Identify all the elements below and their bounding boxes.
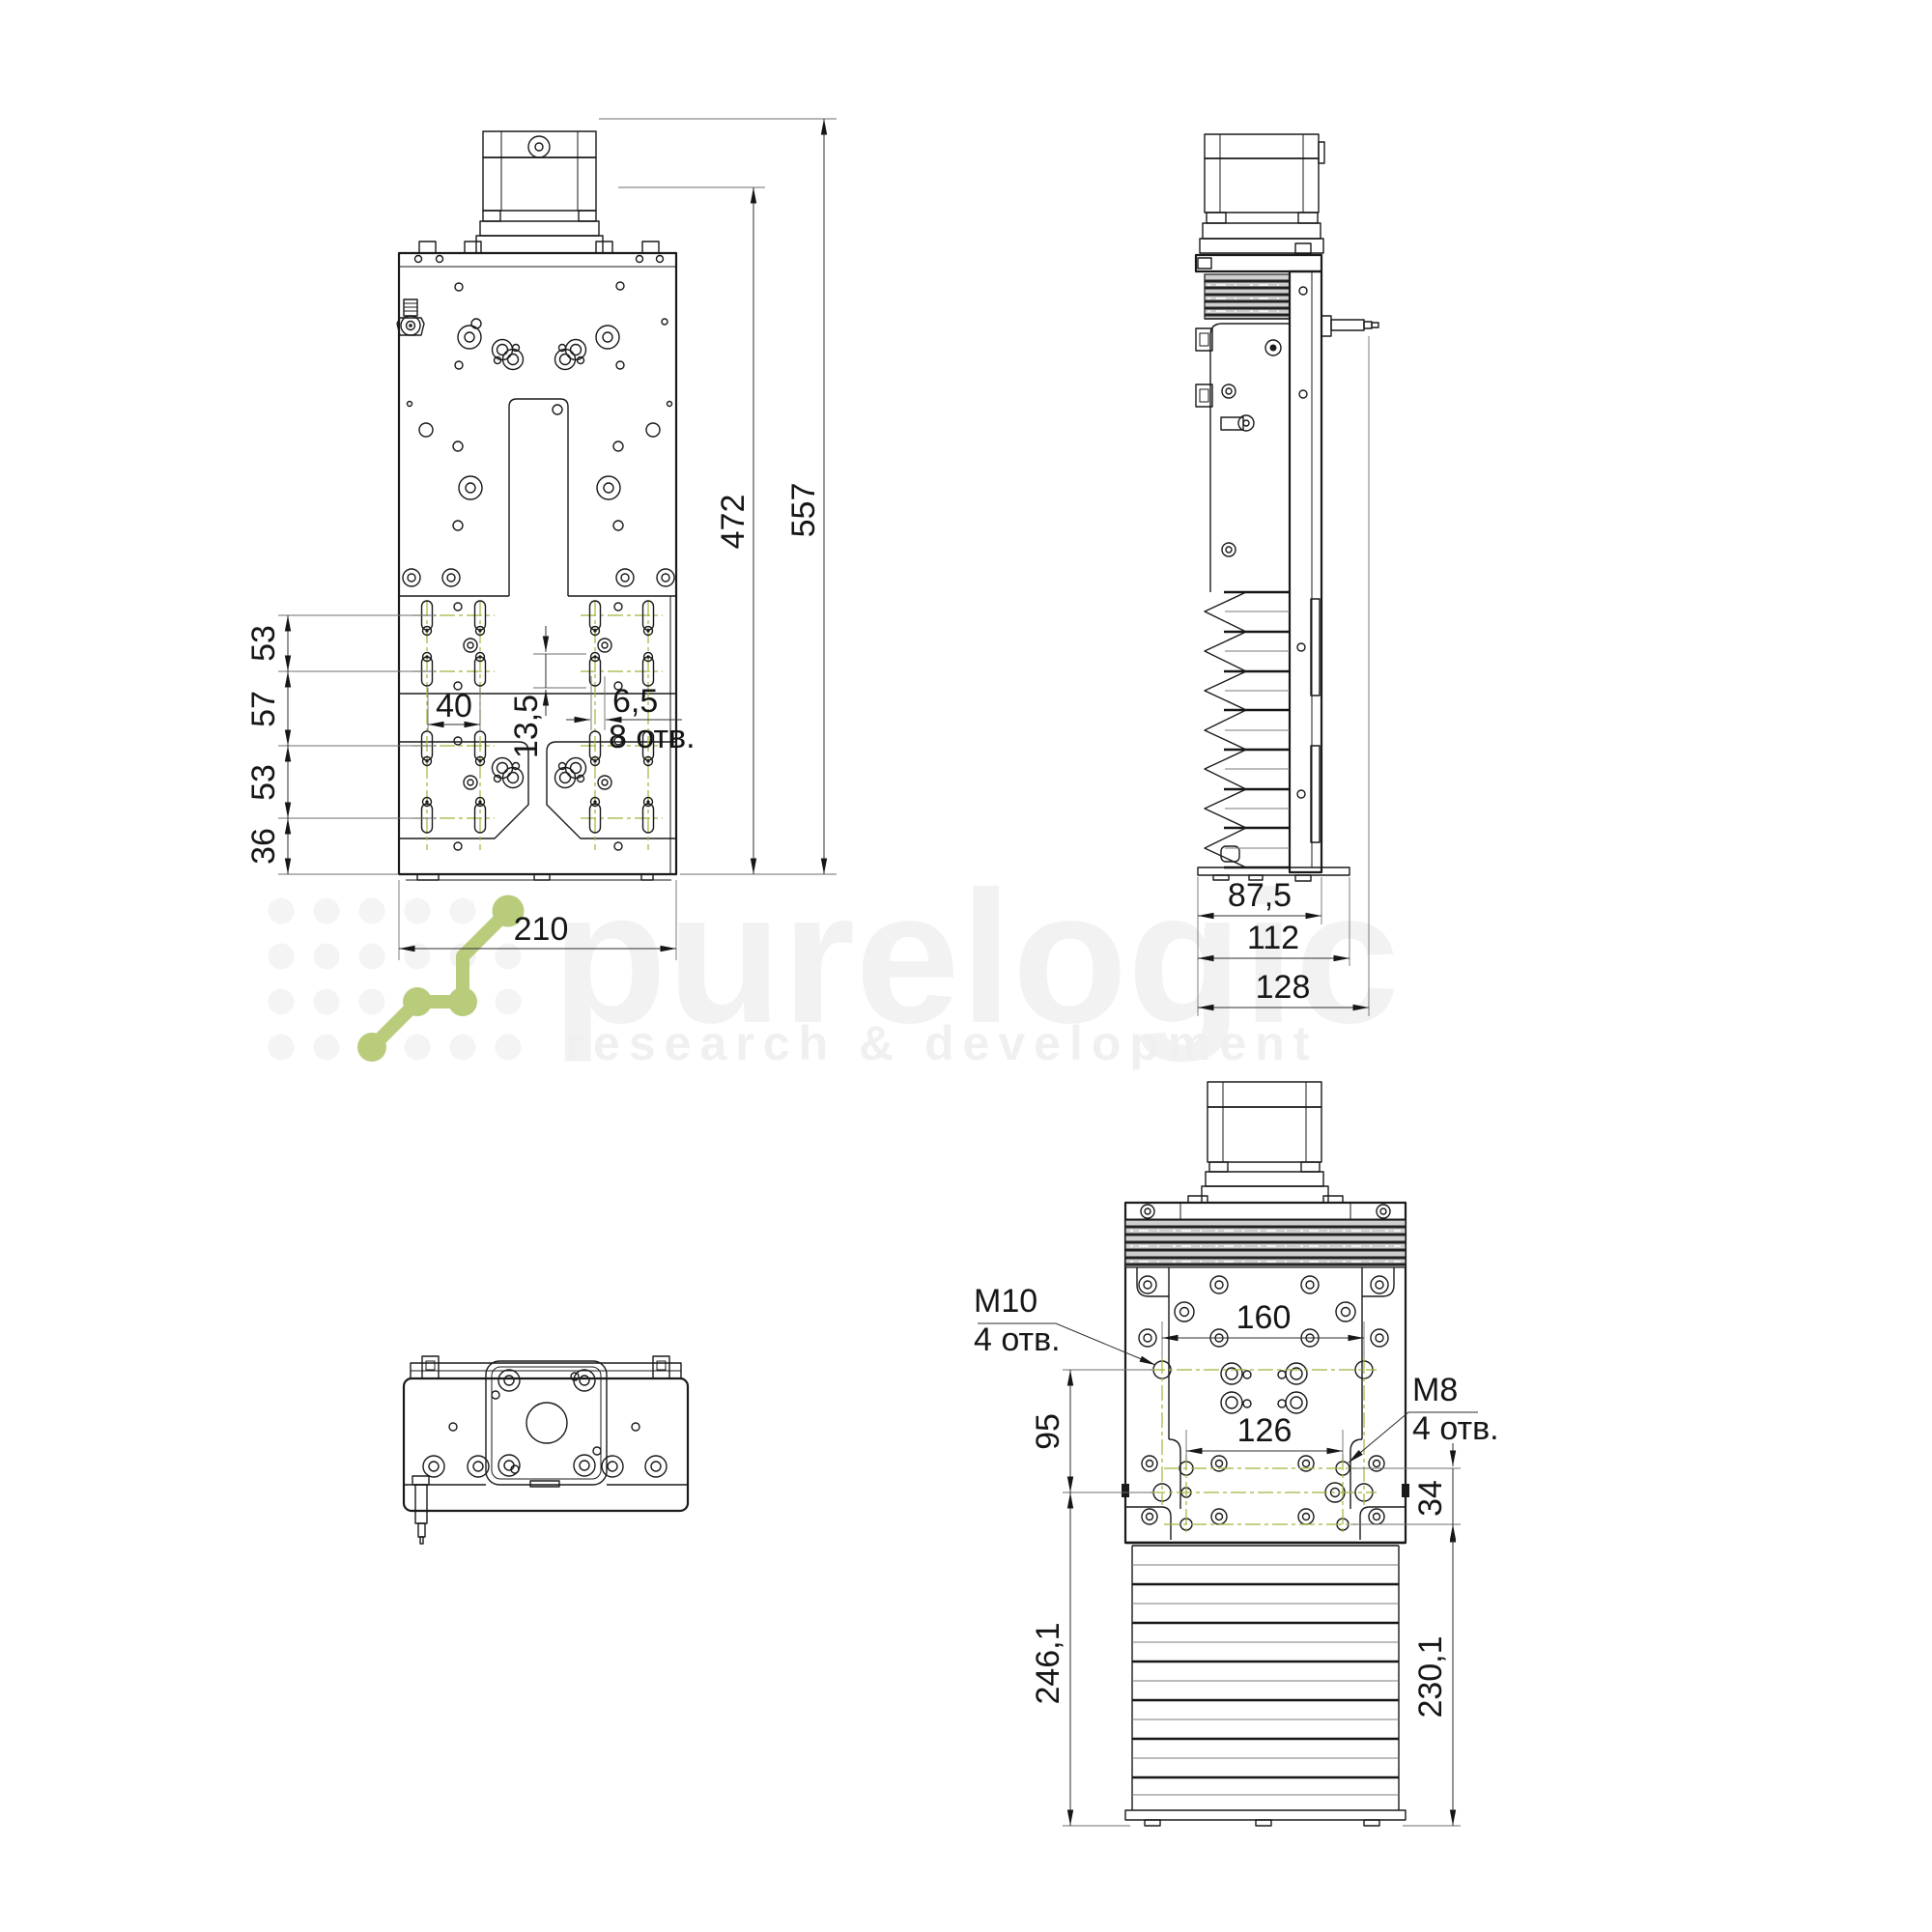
m10-callout: M10 4 отв. (974, 1283, 1155, 1365)
rear-motor (1202, 1082, 1328, 1203)
logo-dot-grid (269, 898, 522, 1061)
dim-width: 210 (514, 911, 569, 948)
dim-bottom-hole-span: 126 (1237, 1412, 1293, 1449)
label-slot-count: 8 отв. (609, 719, 696, 755)
m8-callout: M8 4 отв. (1349, 1372, 1499, 1463)
front-holes (403, 256, 674, 587)
brand-logo (269, 895, 525, 1063)
front-motor (476, 131, 603, 253)
label-m8-thread: M8 (1412, 1372, 1458, 1408)
front-sensor-bolt (397, 299, 424, 335)
dim-slot-pitch: 40 (436, 688, 472, 724)
dim-body-depth: 87,5 (1228, 877, 1292, 914)
front-dimensions: 53 57 53 36 40 13,5 6,5 8 отв. 472 557 2… (245, 119, 837, 960)
top-motor-shaft (526, 1403, 567, 1443)
dim-body-height: 472 (715, 495, 752, 550)
dim-top-hole-span: 160 (1236, 1299, 1292, 1336)
dim-right-height: 230,1 (1412, 1635, 1449, 1718)
page: { "watermark": { "brand": "purelogic", "… (0, 0, 1932, 1932)
side-body (1196, 255, 1321, 872)
dim-slot-width: 6,5 (612, 683, 658, 720)
label-m10-thread: M10 (974, 1283, 1037, 1320)
dim-base-depth: 112 (1247, 920, 1299, 956)
rear-view (1122, 1082, 1409, 1826)
watermark-tagline: research & development (566, 1016, 1319, 1070)
front-view (397, 131, 676, 880)
rear-base (1125, 1810, 1406, 1826)
dim-overall-depth: 128 (1256, 969, 1311, 1006)
side-bellows (1205, 592, 1290, 867)
dim-row-spacing-top: 53 (245, 625, 282, 662)
carriage-cutout (509, 399, 568, 596)
dim-total-height: 557 (785, 483, 822, 538)
logo-graph-icon (357, 895, 525, 1063)
top-view (404, 1356, 688, 1544)
technical-drawing: purelogic research & development (0, 0, 1932, 1932)
side-connector (1321, 316, 1378, 336)
dim-row-spacing-bottom: 36 (245, 828, 282, 865)
side-motor (1200, 134, 1324, 254)
rear-bellows (1132, 1546, 1399, 1810)
dim-rows-offset: 34 (1412, 1480, 1449, 1517)
label-m10-count: 4 отв. (974, 1321, 1061, 1358)
dim-left-height: 246,1 (1030, 1622, 1066, 1704)
dim-row-spacing-mid: 57 (245, 691, 282, 727)
dim-slot-offset: 13,5 (508, 695, 545, 758)
side-view (1196, 134, 1378, 881)
front-body (399, 241, 676, 880)
dim-hole-rows-spacing: 95 (1030, 1413, 1066, 1450)
label-m8-count: 4 отв. (1412, 1410, 1499, 1447)
dim-row-spacing-low: 53 (245, 764, 282, 801)
